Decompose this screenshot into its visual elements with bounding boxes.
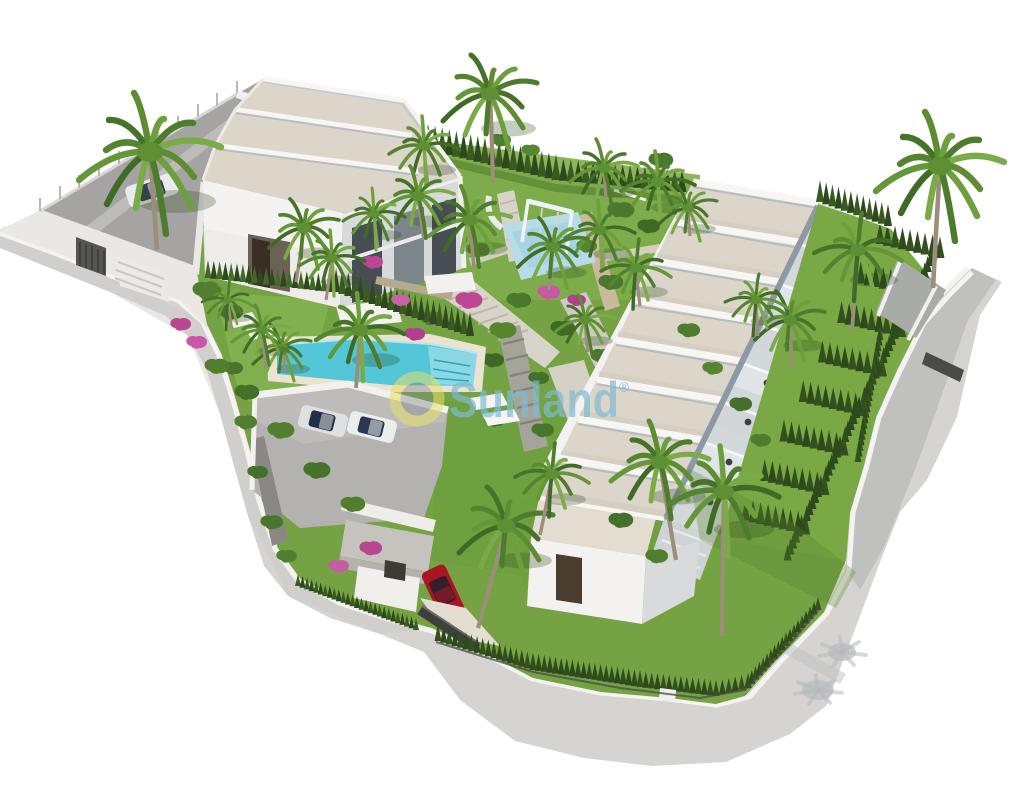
svg-text:Sunland: Sunland [449,372,619,428]
svg-text:®: ® [619,379,630,395]
